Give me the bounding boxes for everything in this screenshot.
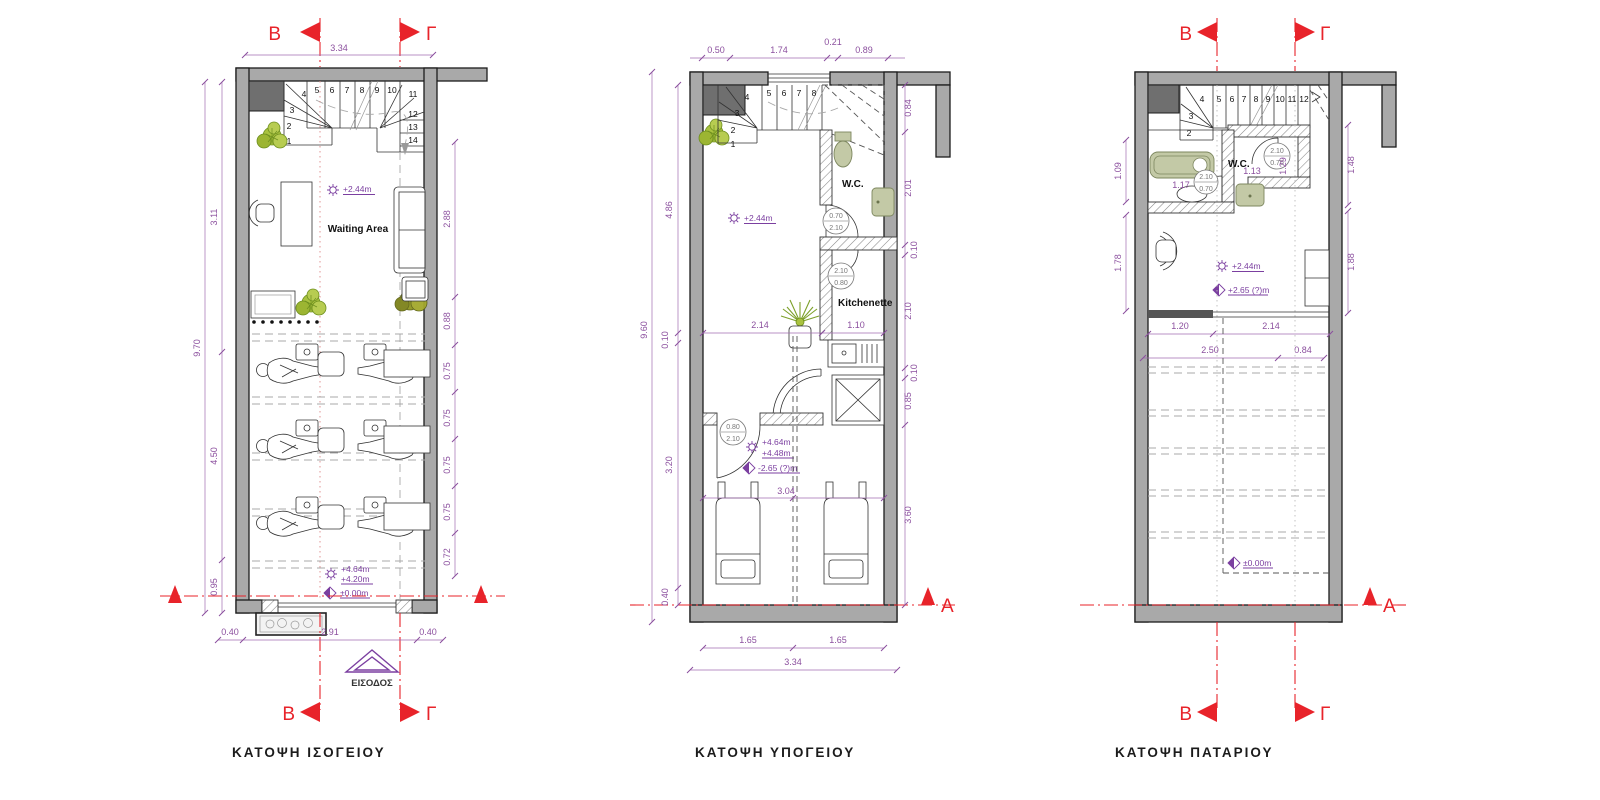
entrance-symbol [346,650,398,672]
stair-number: 12 [408,109,418,119]
wall-end-hatch-left [262,600,278,613]
plan-title-loft: ΚΑΤΟΨΗ ΠΑΤΑΡΙΟΥ [1115,745,1274,760]
toilet-icon [834,141,852,167]
dim: 3.60 [903,506,913,524]
stair-number: 9 [375,85,380,95]
dim: 3.11 [209,209,219,226]
section-arrow-a-icon [474,585,488,603]
wall-bottom-left [236,600,262,613]
architectural-drawing-sheet: B Γ 3.34 1 2 3 4 5 6 7 8 9 10 11 12 [0,0,1600,800]
wall-left [1135,72,1148,622]
toilet-tank-icon [835,132,851,141]
stair-number: 2 [287,121,292,131]
dim: 2.91 [321,627,339,637]
room-label-kitchenette: Kitchenette [838,298,893,309]
room-label-wc: W.C. [842,179,864,190]
dim: 1.10 [847,320,865,330]
section-letter-g: Γ [1320,704,1330,725]
dim: 0.85 [903,392,913,410]
section-letter-a: A [1383,596,1396,617]
plant-pot [789,326,811,348]
stair-number: 8 [812,88,817,98]
stair-number: 2 [731,125,736,135]
dim: 0.40 [419,627,437,637]
dim: 0.10 [909,364,919,382]
stair-number: 4 [1200,94,1205,104]
treatment-bed-icon [716,482,760,584]
sofa [394,187,428,301]
section-arrow-g-icon [1295,22,1315,42]
dim-top: 3.34 [330,43,348,53]
section-arrow-g-icon [400,702,420,722]
stair-number: 2 [1187,128,1192,138]
stair-number: 14 [408,135,418,145]
level-sun-icon [325,568,337,580]
wall-right [1329,72,1342,622]
section-arrow-b-icon [1197,22,1217,42]
wall-stub [936,85,950,157]
section-arrow-a-icon [168,585,182,603]
dim: 2.14 [751,320,769,330]
dim: 0.75 [442,362,452,380]
desk [281,182,312,246]
dim: 1.74 [770,45,788,55]
planter-box [256,613,326,635]
dim: 0.40 [221,627,239,637]
section-arrow-a-icon [921,587,935,605]
ground-floor-plan: B Γ 3.34 1 2 3 4 5 6 7 8 9 10 11 12 [160,18,505,760]
dim: 2.10 [903,302,913,320]
dim: 2.50 [1201,345,1219,355]
stair-number: 13 [408,122,418,132]
dim: 0.10 [909,241,919,259]
dim: 0.84 [903,99,913,117]
wall-top [1135,72,1396,85]
dim: 2.01 [903,179,913,197]
basement-plan: 0.50 1.74 0.21 0.89 1 2 3 4 5 6 7 8 W.C. [630,37,955,760]
level-sun-icon [728,212,740,224]
cabinet [1305,250,1329,306]
door-tag-top: 2.10 [1270,148,1284,155]
door-tag-top: 2.10 [1199,174,1213,181]
plant-icon [257,122,287,148]
kitchenette: 2.10 0.80 Kitchenette [820,250,893,367]
office-chair [249,200,274,226]
dim: 2.14 [1262,321,1280,331]
dim: 1.29 [1278,157,1288,175]
section-letter-g: Γ [426,704,436,725]
dim: 0.75 [442,456,452,474]
stair-number: 3 [290,105,295,115]
bathroom: W.C. 2.10 0.70 2.10 0.70 1.17 1.13 1.29 [1148,125,1310,213]
stair-number: 5 [315,85,320,95]
dim: 1.65 [829,635,847,645]
stair-number: 4 [302,89,307,99]
level-zero-icon [324,587,336,599]
wall-right [884,72,897,622]
level-diamond-icon [1213,284,1225,296]
dim: 9.70 [192,339,202,357]
dim: 1.09 [1113,162,1123,180]
level-text: +4.20m [341,574,370,584]
dim: 3.04 [777,486,795,496]
dental-chair-icon [257,344,325,383]
staircase: 1 2 3 4 5 6 7 8 9 10 11 12 13 14 [284,81,424,155]
treatment-bed-icon [824,482,868,584]
plan-title-basement: ΚΑΤΟΨΗ ΥΠΟΓΕΙΟΥ [695,745,855,760]
section-letter-b: B [1179,24,1192,45]
level-text: +2.44m [1232,261,1261,271]
sink-icon [872,188,894,216]
door-tag-bottom: 0.80 [834,280,848,287]
wall-left [236,68,249,613]
stair-number: 8 [360,85,365,95]
section-arrow-g-icon [1295,702,1315,722]
wall-top [236,68,487,81]
room-label-waiting: Waiting Area [328,224,389,235]
dim: 1.48 [1346,156,1356,174]
dim: 0.84 [1294,345,1312,355]
dental-chair-icon [257,497,325,536]
door-tag-top: 0.70 [829,213,843,220]
level-text: +4.64m [341,564,370,574]
section-arrow-b-icon [300,22,320,42]
level-zero-icon [1228,557,1240,569]
dim: 2.88 [442,210,452,228]
dim: 1.88 [1346,253,1356,271]
dim: 3.20 [664,456,674,474]
door-tag-top: 0.80 [726,424,740,431]
dim: 1.65 [739,635,757,645]
loft-edge [1148,310,1329,318]
level-text: -2.65 (?)m [758,463,797,473]
section-arrow-b-icon [300,702,320,722]
window [768,74,830,82]
wall-left [690,72,703,622]
dim: 0.75 [442,503,452,521]
dim: 9.60 [639,321,649,339]
dim: 0.21 [824,37,842,47]
stair-number: 4 [745,92,750,102]
dim: 1.78 [1113,254,1123,272]
section-letter-b: B [268,24,281,45]
level-sun-icon [327,184,339,196]
plant-icon [781,300,819,326]
stair-number: 9 [1266,94,1271,104]
shaft-box [249,81,284,111]
dim: 0.72 [442,548,452,566]
stair-number: 7 [1242,94,1247,104]
dim: 4.86 [664,201,674,219]
stair-number: 6 [1230,94,1235,104]
section-arrow-b-icon [1197,702,1217,722]
stair-number: 7 [797,88,802,98]
shaft-box [1148,85,1179,113]
stair-number: 8 [1254,94,1259,104]
section-arrow-g-icon [400,22,420,42]
stair-number: 3 [1189,111,1194,121]
door-tag-bottom: 2.10 [829,225,843,232]
level-diamond-icon [743,462,755,474]
stair-number: 1 [731,139,736,149]
dim: 1.13 [1243,166,1261,176]
level-text: +4.64m [762,437,791,447]
stair-number: 10 [1275,94,1285,104]
level-text: ±0.00m [1243,558,1271,568]
door-tag-bottom: 2.10 [726,436,740,443]
level-text: +2.44m [343,184,372,194]
dim: 0.50 [707,45,725,55]
dim: 0.40 [660,588,670,606]
section-letter-b: B [1179,704,1192,725]
dim: 1.17 [1172,180,1190,190]
entrance-label: ΕΙΣΟΔΟΣ [351,678,393,689]
floor-plans-svg: B Γ 3.34 1 2 3 4 5 6 7 8 9 10 11 12 [0,0,1600,800]
wall-bottom [1135,605,1342,622]
office-chair [1156,232,1177,270]
level-text: +2.44m [744,213,773,223]
wall-bottom-right [412,600,437,613]
stair-number: 11 [409,89,418,99]
wall-stub [1382,85,1396,147]
section-arrow-a-icon [1363,587,1377,605]
section-letter-a: A [941,596,954,617]
dim: 0.95 [209,578,219,596]
wall-end-hatch-right [396,600,412,613]
wall-bottom [690,605,897,622]
stair-arrow-icon [1312,92,1320,102]
stair-number: 6 [782,88,787,98]
stair-number: 10 [387,85,397,95]
level-sun-icon [746,441,758,453]
stair-number: 7 [345,85,350,95]
dim: 0.75 [442,409,452,427]
dim: 0.88 [442,312,452,330]
stair-number: 3 [735,108,740,118]
section-letter-g: Γ [426,24,436,45]
door-tag-top: 2.10 [834,268,848,275]
dim: 1.20 [1171,321,1189,331]
dim: 0.89 [855,45,873,55]
dim: 3.34 [784,657,802,667]
void-dashed-lines [1148,318,1329,573]
section-letter-b: B [282,704,295,725]
wall-right [424,68,437,613]
section-letter-g: Γ [1320,24,1330,45]
stair-number: 6 [330,85,335,95]
level-sun-icon [1216,260,1228,272]
stair-number: 12 [1299,94,1309,104]
plan-title-ground: ΚΑΤΟΨΗ ΙΣΟΓΕΙΟΥ [232,745,386,760]
dim: 4.50 [209,447,219,465]
stair-number: 5 [767,88,772,98]
dim: 0.10 [660,331,670,349]
storefront-glazing [278,603,396,607]
plant-icon [296,289,326,315]
level-text: +4.48m [762,448,791,458]
loft-plan: B Γ 2 3 4 5 6 7 8 9 10 11 12 [1080,18,1410,760]
level-text: +2.65 (?)m [1228,285,1269,295]
door-tag-bottom: 0.70 [1199,186,1213,193]
